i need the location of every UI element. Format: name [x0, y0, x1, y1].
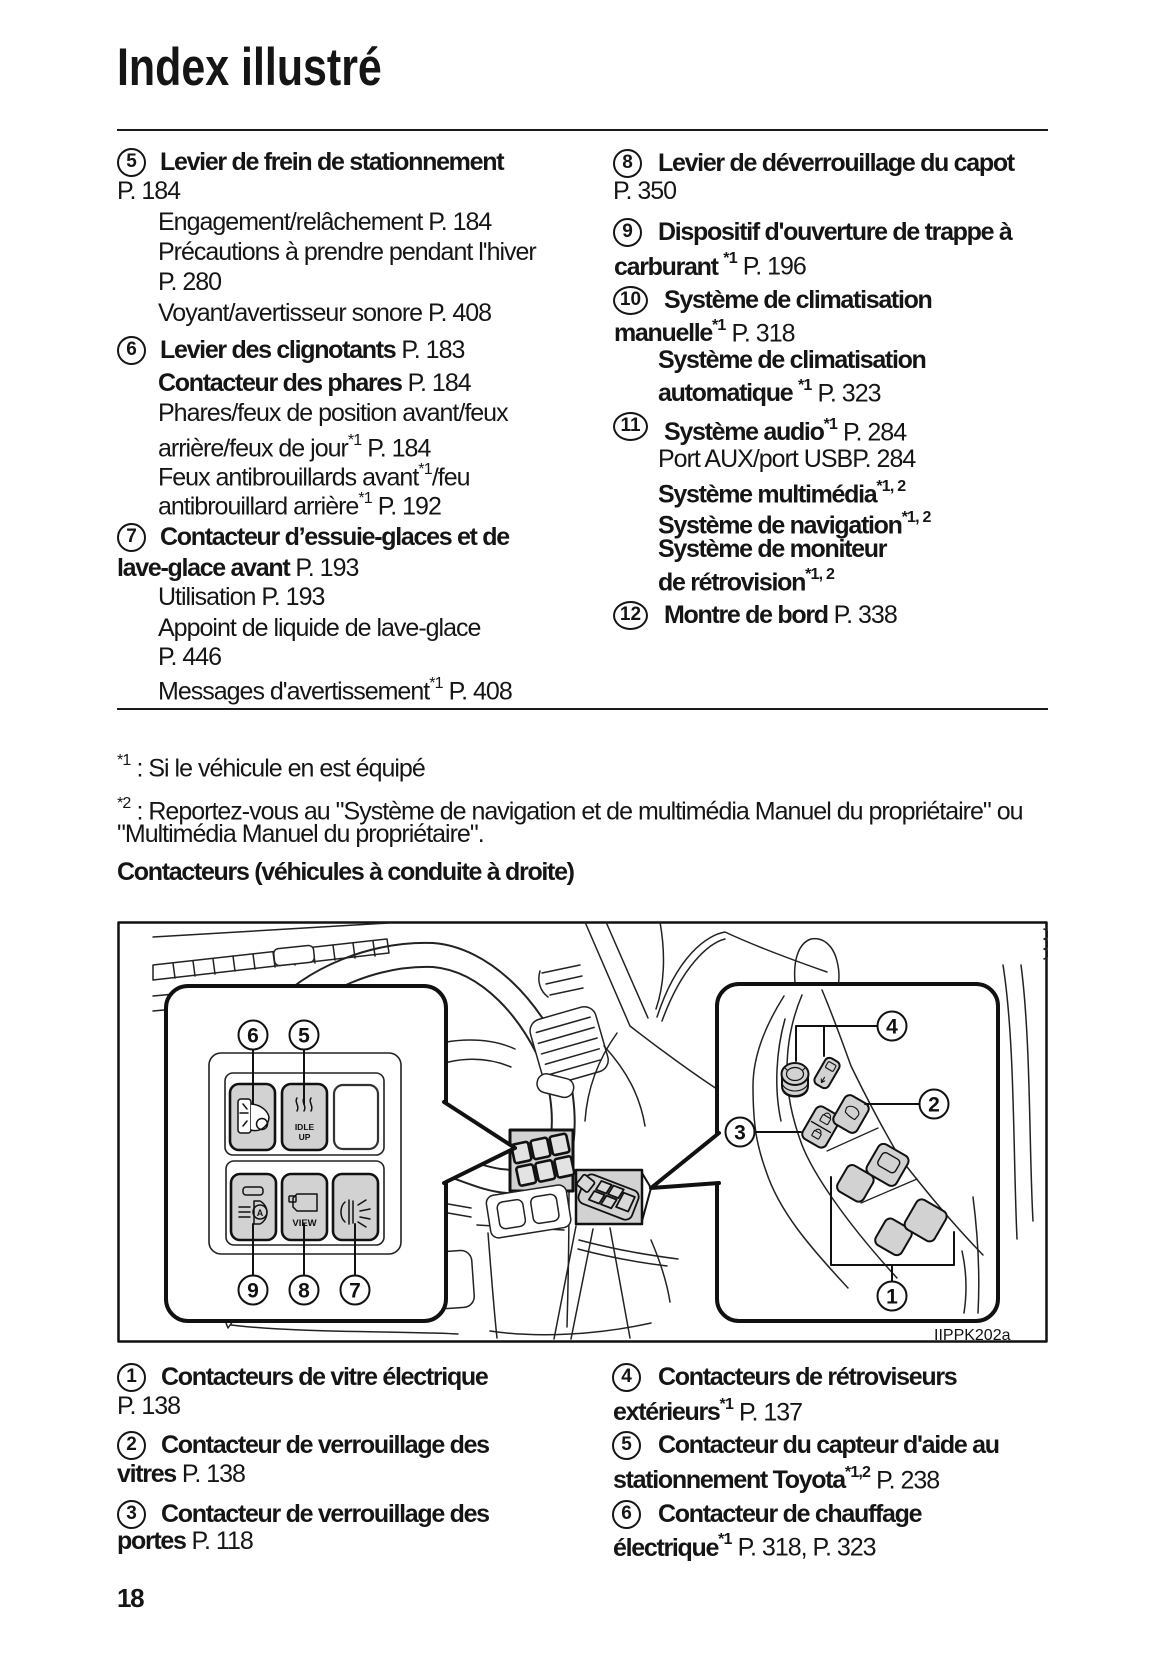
svg-text:IDLE: IDLE: [295, 1122, 315, 1132]
svg-text:6: 6: [247, 1025, 259, 1048]
svg-text:1: 1: [886, 1286, 898, 1309]
svg-text:3: 3: [734, 1122, 746, 1145]
svg-text:9: 9: [247, 1280, 259, 1303]
svg-text:8: 8: [298, 1280, 310, 1303]
svg-text:UP: UP: [299, 1132, 311, 1142]
svg-text:5: 5: [298, 1025, 310, 1048]
svg-text:IIPPK202a: IIPPK202a: [934, 1327, 1011, 1343]
svg-text:7: 7: [349, 1280, 361, 1303]
svg-text:A: A: [257, 1208, 264, 1218]
svg-text:2: 2: [928, 1094, 940, 1117]
svg-text:4: 4: [886, 1016, 898, 1039]
